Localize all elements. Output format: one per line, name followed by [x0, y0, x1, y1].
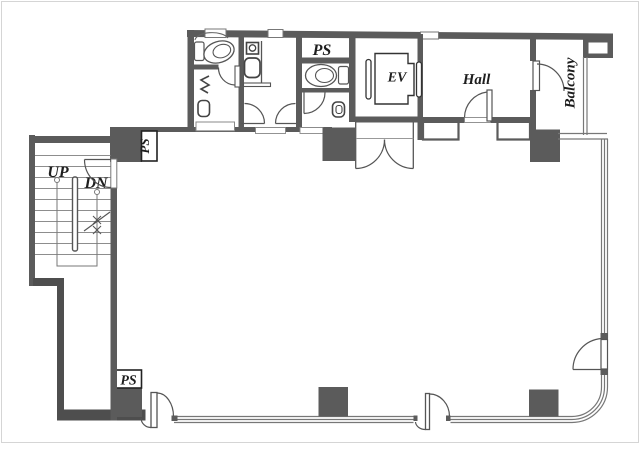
svg-text:UP: UP: [47, 164, 69, 181]
svg-text:EV: EV: [387, 70, 408, 85]
svg-text:Hall: Hall: [462, 72, 491, 88]
svg-text:PS: PS: [312, 42, 332, 59]
svg-text:PS: PS: [137, 138, 152, 153]
svg-text:Balcony: Balcony: [563, 57, 579, 109]
svg-text:PS: PS: [120, 373, 137, 388]
